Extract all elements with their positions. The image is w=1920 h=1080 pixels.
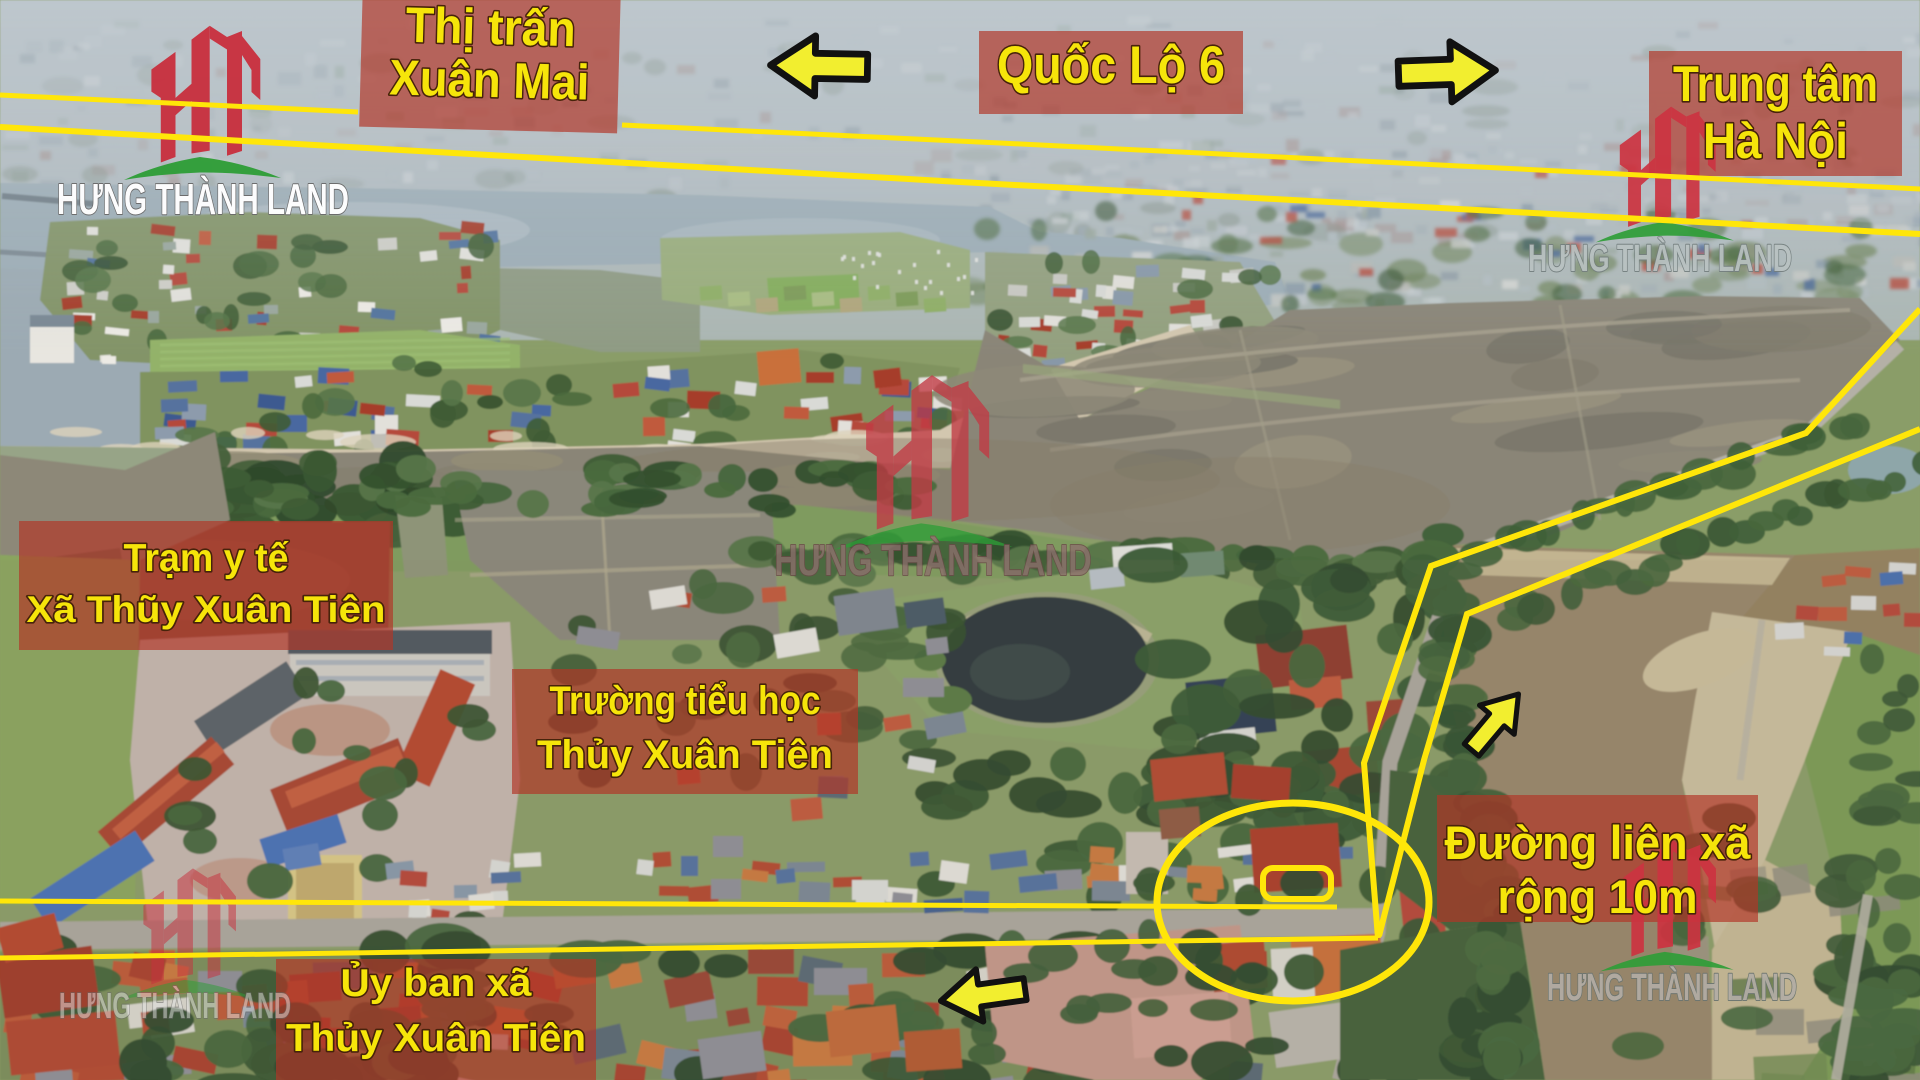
svg-text:Hà Nội: Hà Nội — [1703, 113, 1848, 169]
svg-text:Ủy ban xã: Ủy ban xã — [341, 961, 532, 1005]
svg-text:rộng 10m: rộng 10m — [1498, 870, 1698, 923]
svg-text:Xã Thũy Xuân Tiên: Xã Thũy Xuân Tiên — [27, 589, 386, 630]
svg-text:Trường tiểu học: Trường tiểu học — [550, 679, 821, 723]
svg-text:Quốc Lộ 6: Quốc Lộ 6 — [997, 36, 1225, 95]
svg-text:Thị trấn: Thị trấn — [405, 0, 576, 57]
svg-text:Xuân Mai: Xuân Mai — [389, 49, 590, 110]
svg-text:Trạm y tế: Trạm y tế — [124, 537, 289, 580]
svg-text:Thủy Xuân Tiên: Thủy Xuân Tiên — [286, 1017, 586, 1060]
svg-text:HƯNG THÀNH LAND: HƯNG THÀNH LAND — [1528, 236, 1792, 280]
svg-text:Thủy Xuân Tiên: Thủy Xuân Tiên — [537, 733, 833, 777]
svg-text:HƯNG THÀNH LAND: HƯNG THÀNH LAND — [1547, 965, 1797, 1009]
svg-text:HƯNG THÀNH LAND: HƯNG THÀNH LAND — [57, 174, 349, 224]
svg-text:Trung tâm: Trung tâm — [1673, 56, 1878, 112]
svg-text:HƯNG THÀNH LAND: HƯNG THÀNH LAND — [775, 535, 1092, 585]
svg-text:Đường liên xã: Đường liên xã — [1445, 816, 1752, 869]
svg-text:HƯNG THÀNH LAND: HƯNG THÀNH LAND — [59, 985, 291, 1026]
